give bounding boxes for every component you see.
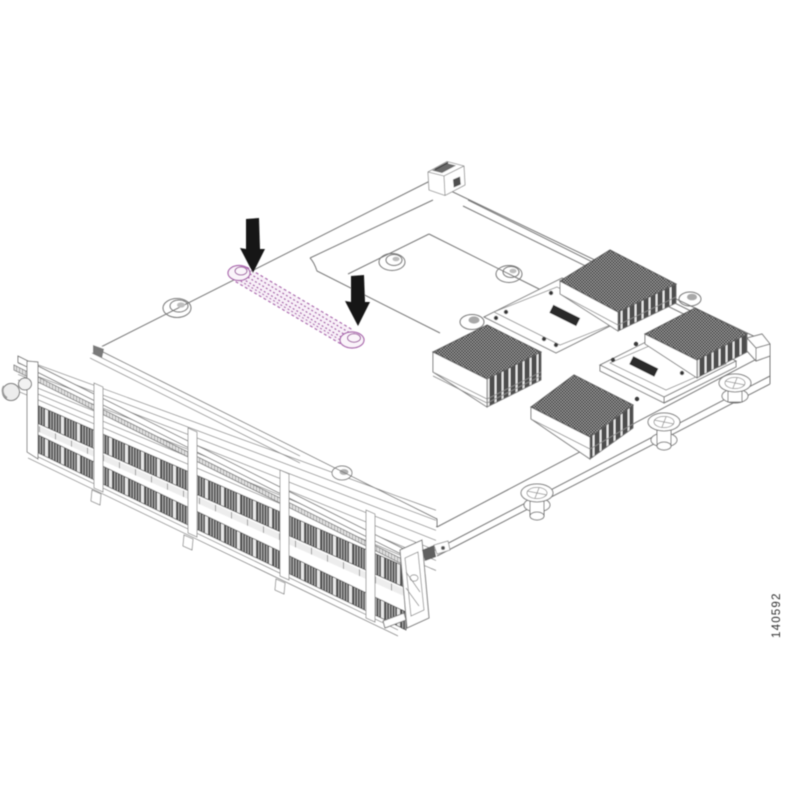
svg-text:140592: 140592 [771, 592, 783, 638]
